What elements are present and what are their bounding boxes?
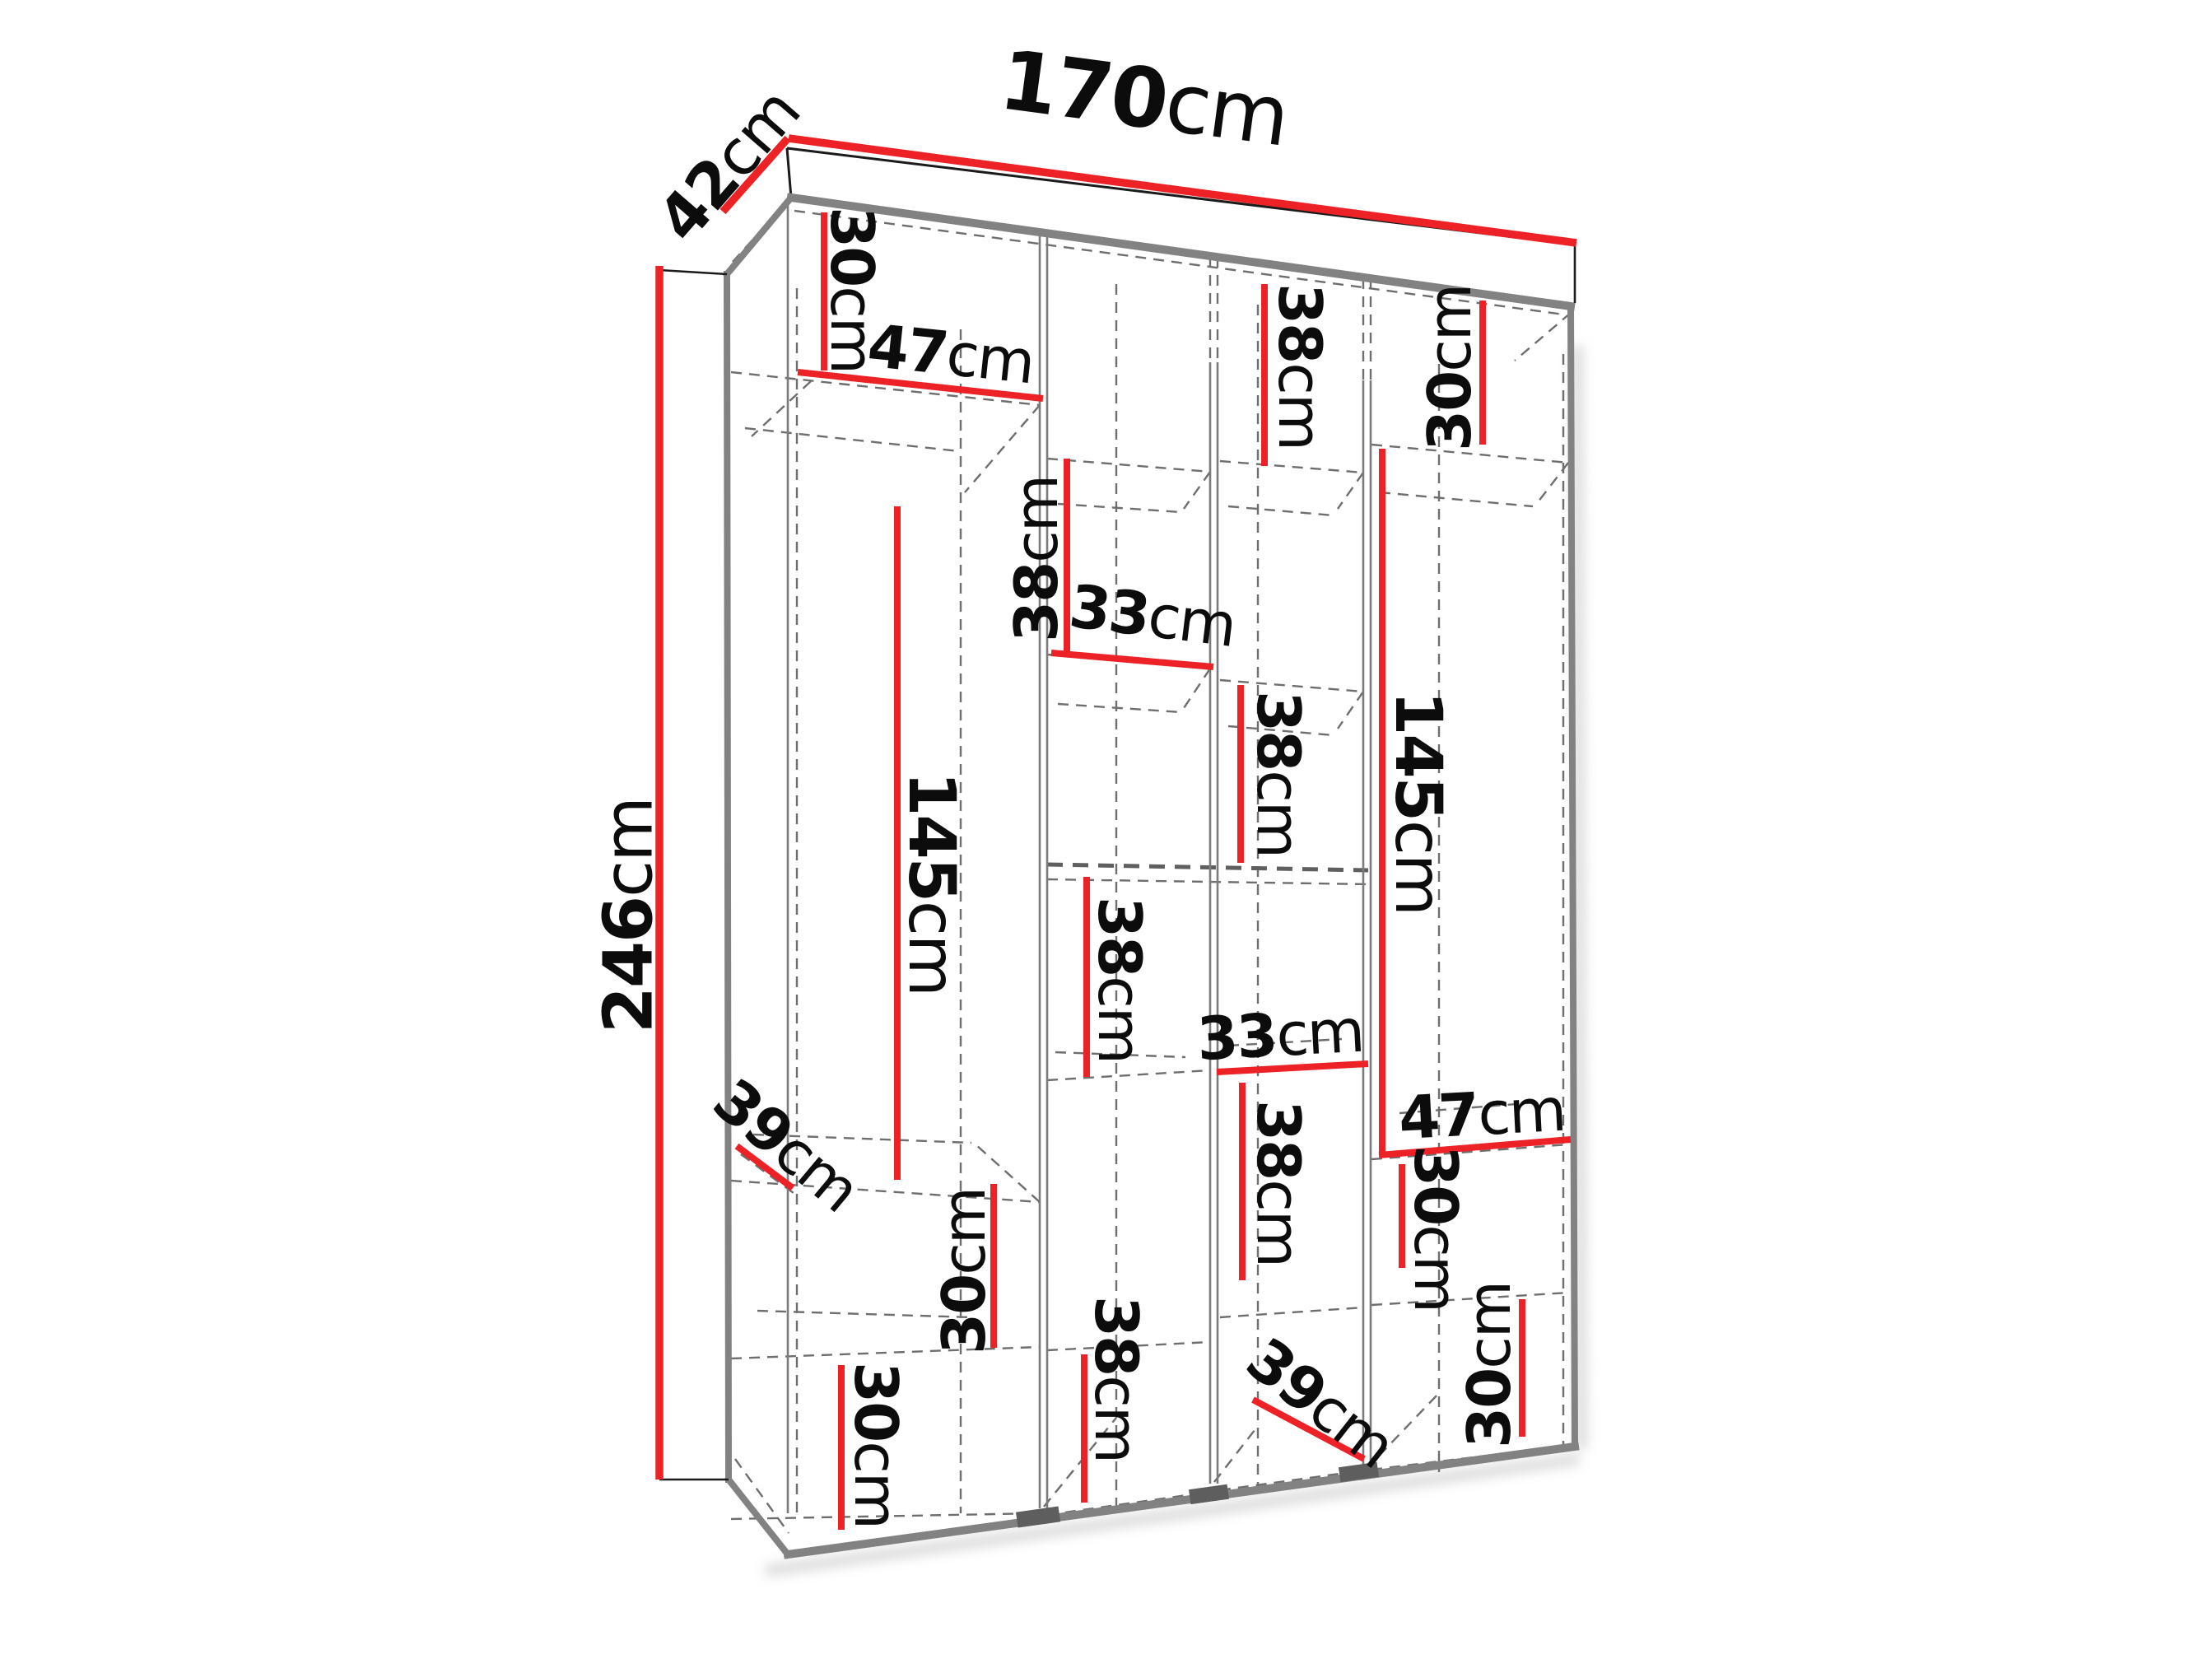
col3-shelf1-diag xyxy=(1338,473,1363,509)
wardrobe-dimension-diagram: 170cm 42cm 246cm 30cm 47cm 145cm 39cm 30… xyxy=(0,0,2212,1659)
label-c2-upper-height: 38cm xyxy=(1002,476,1071,642)
label-c1-lower-height: 30cm xyxy=(929,1188,999,1354)
col3-shelf1-back xyxy=(1228,506,1334,515)
col4-shelf1-back xyxy=(1380,492,1533,506)
col2-shelf3 xyxy=(1047,1070,1210,1080)
label-c3-width: 33cm xyxy=(1195,996,1365,1074)
col2-shelf1-diag xyxy=(1184,472,1210,509)
col1-shelf1-diag2 xyxy=(752,381,811,436)
top-slab-left-edge xyxy=(787,148,791,198)
label-c2-width: 33cm xyxy=(1066,571,1240,660)
dim-line-overall-width xyxy=(789,138,1576,243)
label-c1-bottom-height: 30cm xyxy=(841,1362,910,1528)
col3-shelf1 xyxy=(1220,461,1363,473)
col3-shelf4 xyxy=(1220,1307,1363,1317)
height-ext-top xyxy=(659,270,727,274)
col1-shelf1-back xyxy=(745,428,959,451)
label-overall-height: 246cm xyxy=(590,798,668,1033)
partition-b-bottom-diag xyxy=(1214,1426,1258,1482)
label-c1-hanging-height: 145cm xyxy=(894,771,968,995)
col3-shelf2-diag xyxy=(1338,692,1363,729)
front-left-edge xyxy=(727,274,729,1480)
label-c4-bottom-height: 30cm xyxy=(1455,1282,1524,1448)
col2-shelf2-back xyxy=(1058,704,1181,712)
label-c3-lower-height: 38cm xyxy=(1244,1100,1313,1266)
col2-shelf1-back xyxy=(1058,504,1181,512)
label-c3-upper-height: 38cm xyxy=(1244,691,1313,857)
label-c4-width: 47cm xyxy=(1397,1075,1567,1153)
label-c3-top-height: 38cm xyxy=(1265,283,1334,450)
col2-shelf2-diag xyxy=(1184,669,1210,708)
col2-shelf1 xyxy=(1047,459,1210,472)
front-right-edge xyxy=(1571,306,1575,1447)
foot-partition-b xyxy=(1189,1484,1229,1504)
module-divider-inner xyxy=(1047,879,1368,884)
module-divider-line xyxy=(1047,864,1368,870)
diagram-svg: 170cm 42cm 246cm 30cm 47cm 145cm 39cm 30… xyxy=(0,0,2212,1659)
dimension-labels: 170cm 42cm 246cm 30cm 47cm 145cm 39cm 30… xyxy=(590,31,1567,1528)
label-c2-middle-height: 38cm xyxy=(1085,897,1154,1063)
label-c4-hanging-height: 145cm xyxy=(1381,691,1455,915)
label-c4-top-height: 30cm xyxy=(1415,285,1484,451)
label-c2-bottom-height: 38cm xyxy=(1082,1296,1151,1462)
col4-top-corner-diag xyxy=(1515,313,1571,361)
foot-partition-a xyxy=(1016,1506,1060,1527)
label-overall-width: 170cm xyxy=(994,31,1294,165)
